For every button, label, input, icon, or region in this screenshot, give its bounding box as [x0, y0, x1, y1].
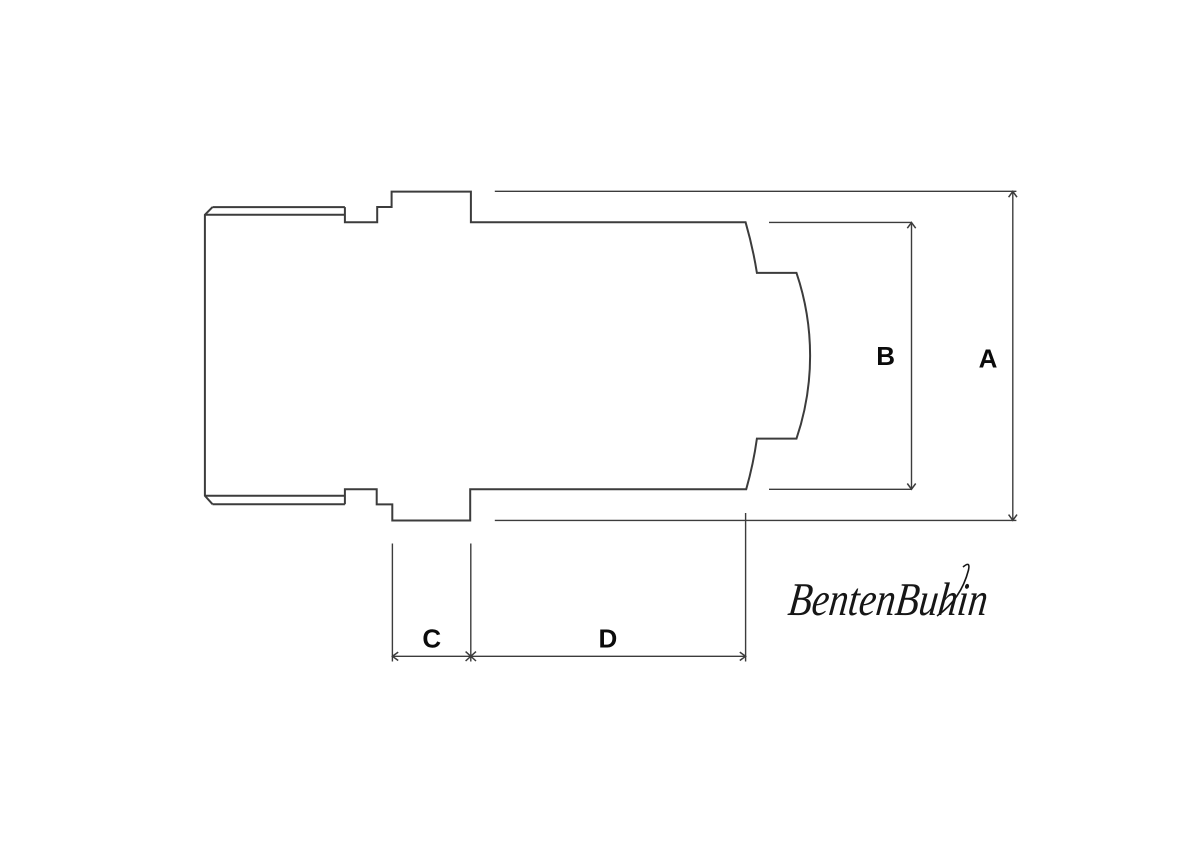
svg-text:C: C — [422, 624, 441, 654]
svg-text:BentenBuhin: BentenBuhin — [786, 574, 991, 626]
svg-text:A: A — [979, 344, 998, 374]
svg-text:B: B — [876, 341, 895, 371]
svg-text:D: D — [599, 624, 618, 654]
